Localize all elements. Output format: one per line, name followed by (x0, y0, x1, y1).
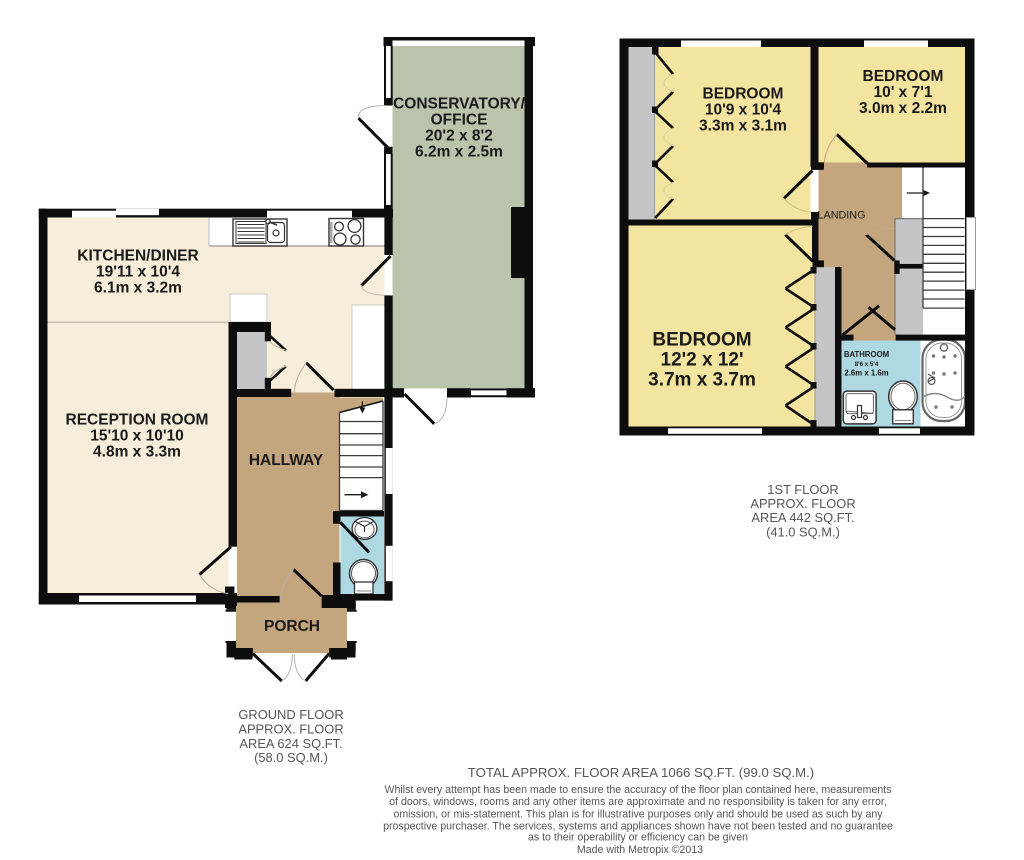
svg-text:of doors, windows, rooms and a: of doors, windows, rooms and any other i… (389, 796, 887, 808)
svg-text:OFFICE: OFFICE (431, 112, 488, 129)
svg-text:10'9 x 10'4: 10'9 x 10'4 (705, 102, 782, 119)
svg-text:RECEPTION ROOM: RECEPTION ROOM (66, 412, 209, 429)
svg-text:omission, or mis-statement. Th: omission, or mis-statement. This plan is… (393, 808, 883, 820)
svg-text:AREA 624 SQ.FT.: AREA 624 SQ.FT. (239, 736, 342, 751)
svg-text:TOTAL APPROX. FLOOR AREA 1066: TOTAL APPROX. FLOOR AREA 1066 SQ.FT. (99… (468, 765, 814, 780)
svg-text:AREA 442 SQ.FT.: AREA 442 SQ.FT. (751, 510, 854, 525)
svg-text:GROUND FLOOR: GROUND FLOOR (238, 707, 343, 722)
svg-text:3.0m x 2.2m: 3.0m x 2.2m (859, 100, 947, 117)
svg-text:19'11 x 10'4: 19'11 x 10'4 (96, 264, 180, 281)
svg-text:HALLWAY: HALLWAY (249, 452, 324, 469)
svg-text:8'6 x 5'4: 8'6 x 5'4 (855, 361, 879, 368)
svg-text:1ST FLOOR: 1ST FLOOR (767, 482, 838, 497)
svg-text:2.6m x 1.6m: 2.6m x 1.6m (844, 369, 888, 378)
svg-text:3.3m x 3.1m: 3.3m x 3.1m (699, 118, 787, 135)
svg-text:6.1m x 3.2m: 6.1m x 3.2m (94, 280, 182, 297)
svg-text:(58.0 SQ.M.): (58.0 SQ.M.) (254, 750, 328, 765)
svg-text:Made with Metropix ©2013: Made with Metropix ©2013 (577, 844, 703, 856)
svg-text:BEDROOM: BEDROOM (652, 330, 751, 351)
svg-text:4.8m x 3.3m: 4.8m x 3.3m (93, 444, 181, 461)
svg-text:BATHROOM: BATHROOM (844, 350, 889, 359)
svg-text:6.2m x 2.5m: 6.2m x 2.5m (415, 144, 503, 161)
svg-text:10' x 7'1: 10' x 7'1 (873, 84, 932, 101)
svg-text:as to their operability or eff: as to their operability or efficiency ca… (528, 832, 748, 844)
svg-text:(41.0 SQ.M.): (41.0 SQ.M.) (766, 524, 840, 539)
svg-text:20'2 x 8'2: 20'2 x 8'2 (425, 128, 493, 145)
svg-text:Whilst every attempt has been: Whilst every attempt has been made to en… (384, 784, 891, 796)
svg-text:APPROX. FLOOR: APPROX. FLOOR (750, 496, 855, 511)
svg-text:APPROX. FLOOR: APPROX. FLOOR (238, 721, 343, 736)
svg-text:KITCHEN/DINER: KITCHEN/DINER (77, 248, 198, 265)
svg-text:PORCH: PORCH (264, 618, 320, 635)
svg-text:12'2 x 12': 12'2 x 12' (661, 350, 744, 371)
svg-text:3.7m x 3.7m: 3.7m x 3.7m (648, 370, 756, 391)
svg-text:15'10 x 10'10: 15'10 x 10'10 (90, 428, 184, 445)
svg-text:BEDROOM: BEDROOM (863, 68, 944, 85)
svg-text:BEDROOM: BEDROOM (703, 86, 784, 103)
svg-text:LANDING: LANDING (818, 210, 866, 222)
svg-text:CONSERVATORY/: CONSERVATORY/ (393, 96, 525, 113)
